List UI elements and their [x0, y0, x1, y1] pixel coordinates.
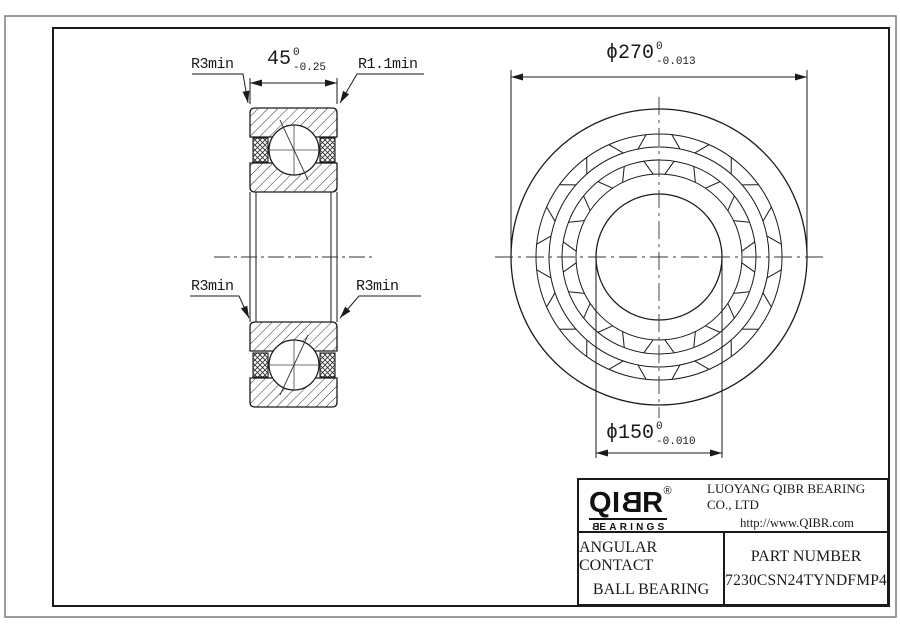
dim-od-tolerance: 0 -0.013 [656, 42, 696, 68]
cage-section-left [253, 138, 268, 162]
product-line2: BALL BEARING [593, 581, 709, 599]
logo-wordmark: QIBR® [589, 477, 707, 517]
dimension-width-text: 45 0 -0.25 [267, 49, 326, 75]
company-logo: QIBR® BEARINGS [579, 477, 707, 535]
label-chamfer-top-right: R1.1min [358, 56, 418, 73]
dimension-bore-text: ϕ150 0 -0.010 [606, 423, 696, 449]
dim-width-value: 45 [267, 49, 291, 71]
dim-bore-value: ϕ150 [606, 423, 654, 445]
product-description-cell: ANGULAR CONTACT BALL BEARING [579, 533, 725, 604]
label-chamfer-top-left: R3min [191, 56, 234, 73]
cage-section-left [253, 353, 268, 377]
dimension-width [250, 78, 337, 104]
part-number-value: 7230CSN24TYNDFMP4 [725, 572, 887, 590]
registered-mark: ® [664, 485, 672, 497]
company-name: LUOYANG QIBR BEARING CO., LTD [707, 481, 887, 513]
dim-od-value: ϕ270 [606, 43, 654, 65]
cross-section-view [190, 74, 424, 407]
dim-width-tolerance: 0 -0.25 [293, 48, 326, 74]
label-chamfer-mid-left: R3min [191, 278, 234, 295]
part-number-cell: PART NUMBER 7230CSN24TYNDFMP4 [725, 533, 887, 604]
label-chamfer-mid-right: R3min [356, 278, 399, 295]
dimension-od-text: ϕ270 0 -0.013 [606, 43, 696, 69]
part-number-label: PART NUMBER [751, 548, 862, 566]
dim-bore-tolerance: 0 -0.010 [656, 422, 696, 448]
title-block-detail-row: ANGULAR CONTACT BALL BEARING PART NUMBER… [579, 533, 887, 604]
section-bottom-half [250, 322, 337, 407]
drawing-sheet: R3min 45 0 -0.25 R1.1min R3min R3min ϕ27… [0, 0, 900, 636]
section-top-half [250, 108, 337, 192]
product-line1: ANGULAR CONTACT [579, 539, 723, 575]
cage-section-right [320, 353, 335, 377]
cage-section-right [320, 138, 335, 162]
title-block: QIBR® BEARINGS LUOYANG QIBR BEARING CO.,… [577, 478, 889, 606]
front-view-centerlines [495, 97, 824, 418]
title-block-header-row: QIBR® BEARINGS LUOYANG QIBR BEARING CO.,… [579, 480, 887, 533]
company-website: http://www.QIBR.com [740, 516, 854, 531]
logo-subtitle: BEARINGS [589, 518, 667, 533]
company-info: LUOYANG QIBR BEARING CO., LTD http://www… [707, 481, 887, 531]
